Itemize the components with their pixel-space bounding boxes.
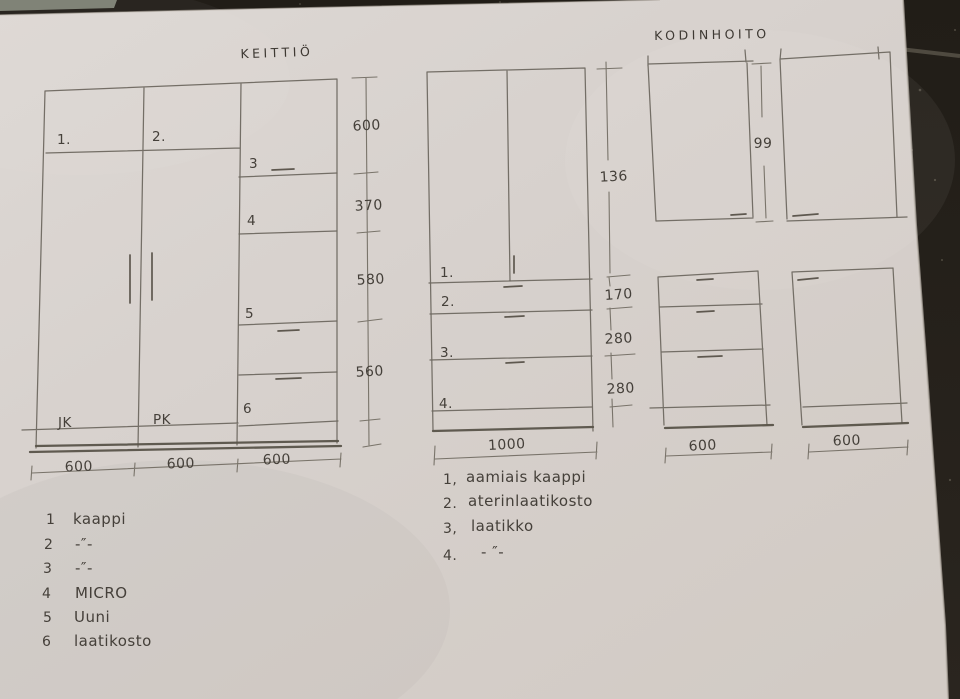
kitchen-wdim-3: 600	[262, 452, 291, 469]
legend-label: laatikko	[471, 517, 534, 535]
kitchen-label-5: 5	[245, 306, 254, 322]
legend-label: -″-	[75, 559, 93, 577]
utility-wdim-2: 600	[832, 433, 861, 450]
legend-num: 4	[42, 586, 51, 602]
kitchen-label-2: 2.	[152, 129, 166, 145]
breakfast-label-3: 3.	[440, 345, 454, 361]
legend-label: laatikosto	[74, 632, 152, 650]
kitchen-label-4: 4	[247, 213, 256, 229]
breakfast-wdim-1000: 1000	[488, 436, 526, 454]
legend-num: 1	[46, 512, 55, 528]
legend-label: aterinlaatikosto	[468, 492, 593, 510]
kitchen-title: KEITTIÖ	[240, 43, 313, 62]
breakfast-hdim-170: 170	[604, 286, 633, 304]
utility-wdim-1: 600	[688, 437, 717, 454]
breakfast-label-2: 2.	[441, 294, 455, 310]
breakfast-label-1: 1.	[440, 265, 454, 281]
legend-num: 5	[43, 610, 52, 626]
legend-label: -″-	[75, 535, 93, 553]
legend-num: 2.	[443, 496, 457, 512]
legend-num: 4.	[443, 548, 457, 564]
utility-upper-left-handle	[731, 214, 746, 215]
breakfast-hdim-280b: 280	[606, 380, 635, 397]
utility-title: KODINHOITO	[654, 26, 770, 43]
breakfast-label-4: 4.	[439, 396, 453, 412]
legend-num: 2	[44, 537, 53, 553]
legend-label: aamiais kaappi	[466, 468, 586, 486]
legend-num: 3,	[443, 521, 457, 537]
kitchen-label-1: 1.	[57, 132, 71, 148]
kitchen-hdim-370: 370	[354, 197, 383, 214]
legend-num: 3	[43, 561, 52, 577]
kitchen-hdim-600: 600	[352, 117, 381, 134]
kitchen-hdim-580: 580	[356, 271, 385, 288]
legend-label: MICRO	[75, 584, 128, 602]
legend-label: kaappi	[73, 510, 126, 528]
sketch-canvas: KEITTIÖ 1. 2. 3 4 5 6 JK PK 600 370 580 …	[0, 0, 960, 699]
kitchen-wdim-1: 600	[64, 459, 93, 476]
legend-num: 6	[42, 634, 51, 650]
kitchen-label-pk: PK	[153, 412, 172, 428]
kitchen-label-jk: JK	[57, 415, 72, 431]
kitchen-hdim-560: 560	[355, 363, 384, 380]
kitchen-label-6: 6	[243, 401, 252, 417]
breakfast-hdim-280a: 280	[604, 330, 633, 347]
legend-label: Uuni	[74, 608, 110, 626]
breakfast-hdim-136: 136	[599, 168, 628, 185]
photo-of-sketch: KEITTIÖ 1. 2. 3 4 5 6 JK PK 600 370 580 …	[0, 0, 960, 699]
kitchen-label-3: 3	[249, 156, 258, 172]
utility-gap-dim-99: 99	[754, 136, 773, 152]
legend-label: - ″-	[481, 543, 504, 561]
legend-num: 1,	[443, 472, 457, 488]
kitchen-wdim-2: 600	[166, 456, 195, 473]
